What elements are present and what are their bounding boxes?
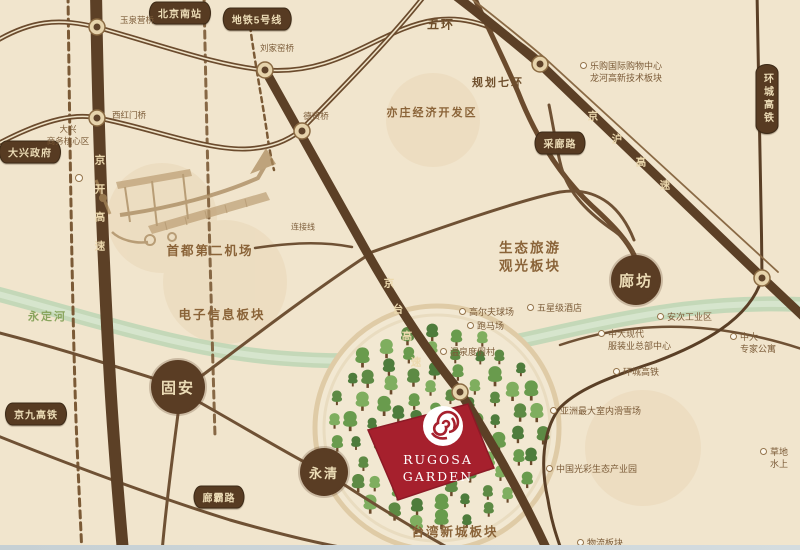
- jingkai-expressway-road: [96, 0, 123, 550]
- logo-line2: GARDEN: [397, 469, 479, 486]
- logo-line1: RUGOSA: [397, 452, 479, 469]
- location-map: 大兴政府北京南站地铁5号线采廊路环城高铁京九高铁廊霸路固安永清廊坊玉泉营桥刘家窑…: [0, 0, 800, 550]
- daxing-core-marker: [75, 174, 83, 182]
- jinghu-expressway-road: [448, 0, 800, 318]
- bottom-edge-strip: [0, 545, 800, 550]
- rugosa-garden-logo-text: RUGOSA GARDEN: [397, 452, 479, 486]
- ring-road-wuhuan: [0, 19, 542, 70]
